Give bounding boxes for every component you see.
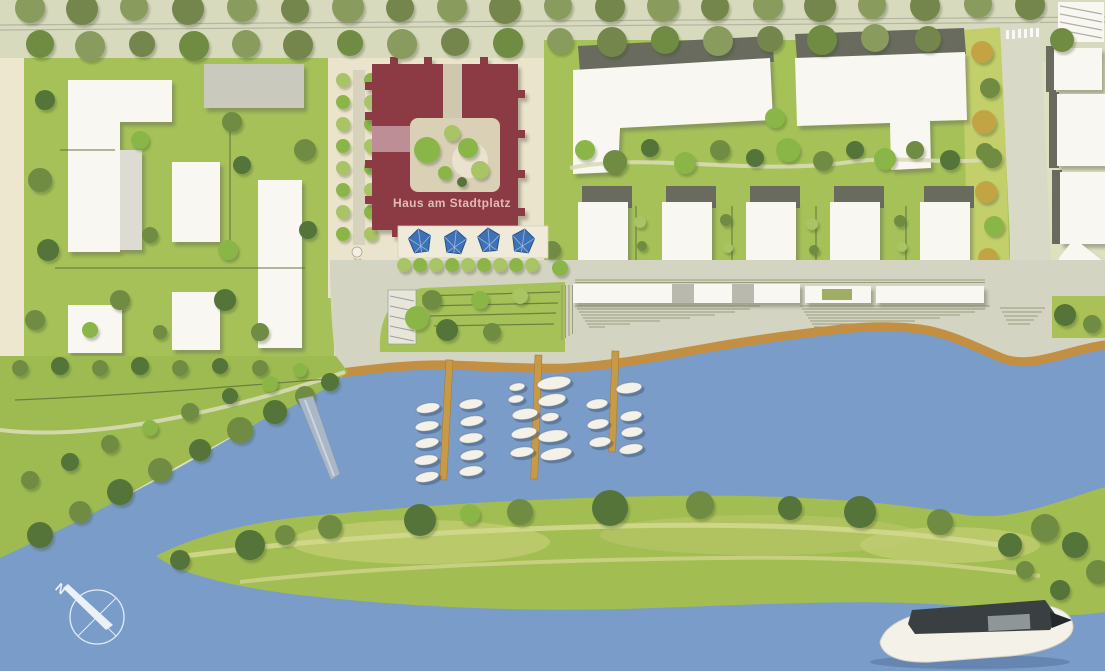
site-plan-canvas: N Haus am Stadtplatz	[0, 0, 1105, 671]
cafe-terrace	[397, 226, 548, 272]
building	[258, 180, 302, 348]
waterfront-slabs	[573, 284, 984, 303]
haus-am-stadtplatz: Haus am Stadtplatz	[365, 57, 525, 237]
building-label: Haus am Stadtplatz	[393, 196, 511, 210]
site-plan: N Haus am Stadtplatz	[0, 0, 1105, 671]
building	[172, 162, 220, 242]
building	[172, 292, 220, 350]
left-district	[24, 58, 334, 363]
entrance-passage	[443, 64, 462, 118]
facade-accent	[372, 126, 410, 152]
promenade-green-patch	[1052, 296, 1105, 338]
terrace-tree-row	[397, 258, 539, 272]
